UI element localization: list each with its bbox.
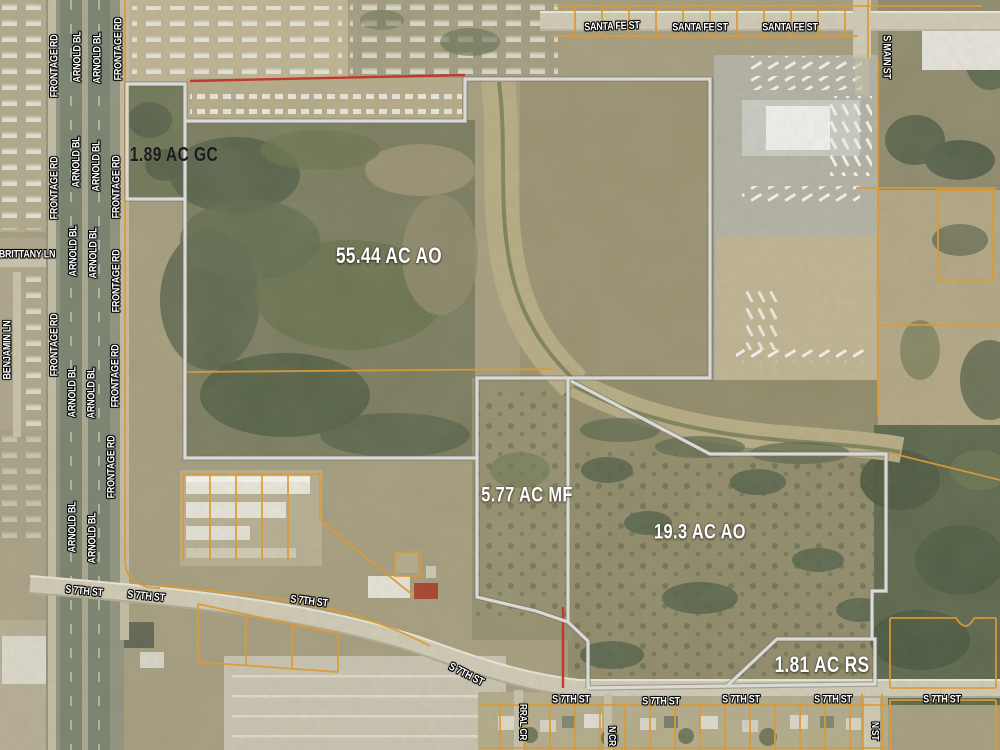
- aerial-parcel-map: SANTA FE ST SANTA FE ST SANTA FE ST S MA…: [0, 0, 1000, 750]
- satellite-imagery: [0, 0, 1000, 750]
